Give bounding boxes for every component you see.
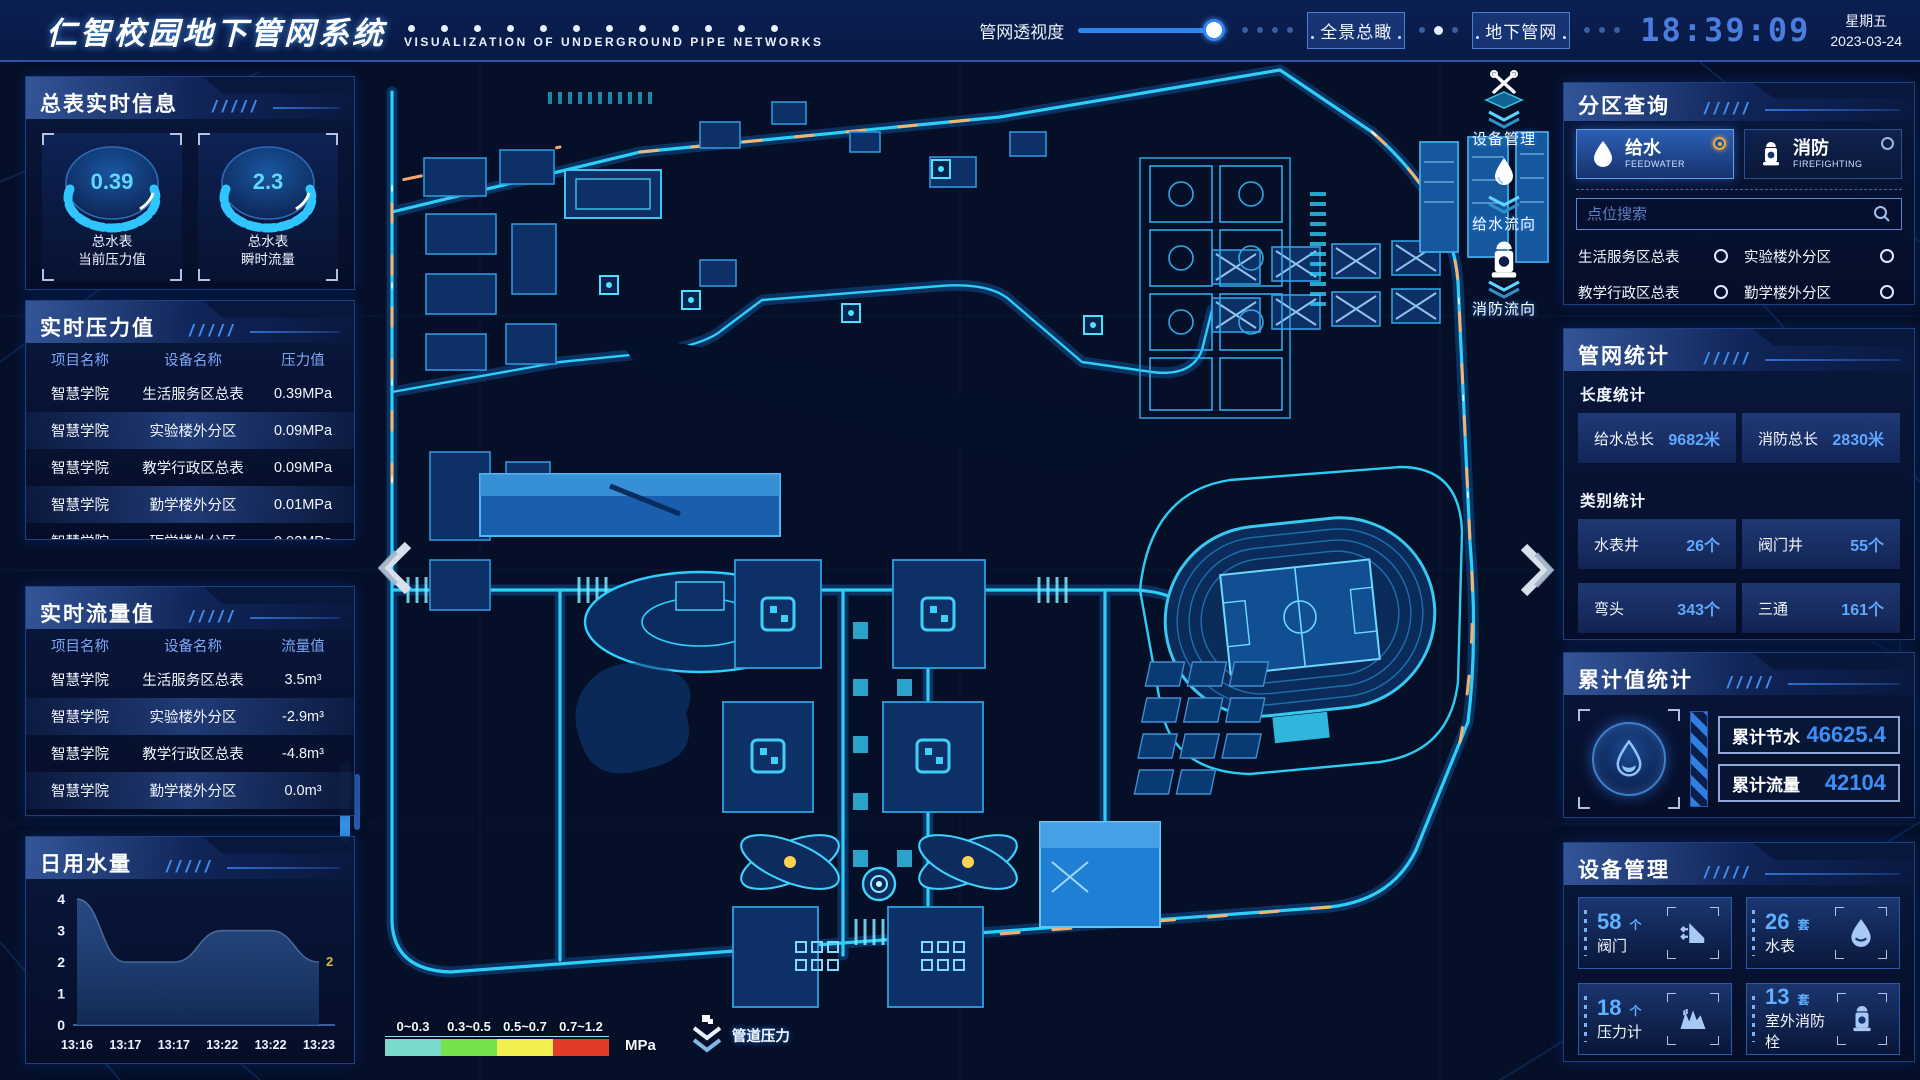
table-row: 智慧学院勤学楼外分区0.0m³ [26,772,354,809]
slashes-decoration: ///// [212,98,261,115]
toolbar-feedwater-flow[interactable]: 给水流向 [1472,155,1536,234]
stat-elbows: 弯头343个 [1578,583,1736,633]
section-title: 设备管理 [1578,860,1670,881]
table-cell: 0.02MPa [262,534,344,541]
stat-fire-length: 消防总长2830米 [1742,413,1900,463]
table-cell: 0.39MPa [262,386,344,402]
stat-valve-wells: 阀门井55个 [1742,519,1900,569]
panel-device-management: 设备管理///// 58个阀门 26套水表 [1563,842,1915,1062]
cumulative-saved-water: 累计节水46625.4 [1718,716,1900,754]
top-header: 仁智校园地下管网系统 VISUALIZATION OF UNDERGROUND … [0,0,1920,62]
table-row: 智慧学院教学行政区总表0.09MPa [26,449,354,486]
gauge-label: 总水表瞬时流量 [241,233,295,269]
hydrant-icon [1485,240,1523,280]
slashes-decoration: ///// [1704,100,1753,117]
legend-color-segment [497,1039,553,1056]
legend-range-label: 0.5~0.7 [497,1019,553,1034]
dots-decoration [1242,27,1293,33]
table-cell: 砺学楼外分区 [124,531,262,540]
zone-radio[interactable] [1714,285,1728,299]
table-cell: 0.0m³ [262,783,344,799]
device-card-valves[interactable]: 58个阀门 [1578,897,1732,969]
svg-text:13:22: 13:22 [255,1038,287,1052]
pipe-pressure-icon [690,1014,724,1056]
slashes-decoration: ///// [1704,864,1753,881]
svg-text:13:16: 13:16 [61,1038,93,1052]
chevron-down-icon [1486,110,1522,130]
table-row: 智慧学院砺学楼外分区0.02MPa [26,523,354,540]
zone-label: 实验楼外分区 [1744,246,1831,267]
firefighting-radio[interactable] [1881,137,1894,150]
device-card-hydrants[interactable]: 13套室外消防栓 [1746,983,1900,1055]
table-row: 智慧学院实验楼外分区0.09MPa [26,412,354,449]
svg-text:3: 3 [57,923,65,939]
title-dots-decoration [404,25,823,32]
hydrant-icon [1849,1004,1875,1034]
table-cell: 生活服务区总表 [124,669,262,690]
zone-label: 生活服务区总表 [1578,246,1680,267]
zone-label: 勤学楼外分区 [1744,282,1831,303]
gauge-card-pressure: 0.39 总水表当前压力值 [42,133,182,281]
table-cell: 生活服务区总表 [124,383,262,404]
slashes-decoration: ///// [1704,350,1753,367]
panel-pipe-stats: 管网统计///// 长度统计 给水总长9682米 消防总长2830米 类别统计 … [1563,328,1915,640]
table-cell: 教学行政区总表 [124,457,262,478]
water-drop-icon [1591,140,1615,168]
clock-time: 18:39:09 [1640,11,1810,49]
section-title: 实时压力值 [40,318,155,339]
legend-color-segment [385,1039,441,1056]
svg-text:13:17: 13:17 [109,1038,141,1052]
slashes-decoration: ///// [189,608,238,625]
table-cell: 智慧学院 [36,743,124,764]
panel-meter-info: 总表实时信息 ///// 0.39 总水表当前压力值 [25,76,355,290]
gauge-label: 总水表当前压力值 [78,233,146,269]
pan-right-arrow[interactable] [1514,542,1560,598]
panel-zone-query: 分区查询///// 给水FEEDWATER 消防FIREFIGHTING 生活服… [1563,82,1915,305]
gauge-card-flow: 2.3 总水表瞬时流量 [198,133,338,281]
dots-decoration [1419,26,1458,35]
table-cell: 教学行政区总表 [124,743,262,764]
dots-decoration [1584,27,1620,33]
slashes-decoration: ///// [1727,674,1776,691]
pressure-table: 智慧学院生活服务区总表0.39MPa智慧学院实验楼外分区0.09MPa智慧学院教… [26,375,354,540]
device-card-pressure-gauges[interactable]: 18个压力计 [1578,983,1732,1055]
app-title: 仁智校园地下管网系统 [46,8,386,53]
section-title: 累计值统计 [1578,670,1693,691]
panel-daily-water: 日用水量///// 0123413:1613:1713:1713:2213:22… [25,836,355,1064]
slashes-decoration: ///// [166,858,215,875]
category-stats-label: 类别统计 [1564,477,1914,519]
svg-text:1: 1 [57,986,65,1002]
panel-realtime-pressure: 实时压力值///// 项目名称 设备名称 压力值 智慧学院生活服务区总表0.39… [25,300,355,540]
table-cell: 3.5m³ [262,672,344,688]
section-title: 实时流量值 [40,604,155,625]
svg-text:2: 2 [326,954,333,969]
table-cell: 智慧学院 [36,780,124,801]
map-toolbar: 设备管理 给水流向 消防流向 [1452,66,1556,325]
hazard-stripes-decoration [1690,711,1708,807]
pressure-legend: 0~0.30.3~0.50.5~0.70.7~1.2 MPa 管道压力 [385,1014,790,1056]
svg-text:4: 4 [57,891,65,907]
table-cell: 智慧学院 [36,494,124,515]
svg-text:0.39: 0.39 [91,169,134,194]
svg-text:13:23: 13:23 [303,1038,335,1052]
hydrant-icon [1759,140,1783,168]
svg-text:13:17: 13:17 [158,1038,190,1052]
app-subtitle: VISUALIZATION OF UNDERGROUND PIPE NETWOR… [404,35,823,49]
gauge-dial: 2.3 [208,137,328,233]
table-header: 项目名称 设备名称 压力值 [26,343,354,375]
device-card-water-meters[interactable]: 26套水表 [1746,897,1900,969]
slashes-decoration: ///// [189,322,238,339]
table-row: 智慧学院实验楼外分区-2.9m³ [26,698,354,735]
toolbar-device-management[interactable]: 设备管理 [1472,66,1536,149]
legend-range-label: 0.7~1.2 [553,1019,609,1034]
table-row: 智慧学院勤学楼外分区0.01MPa [26,486,354,523]
chevron-down-icon [1486,195,1522,215]
legend-color-bar [385,1039,609,1056]
panel-cumulative: 累计值统计///// 累计节水46625.4 累计流量42104 [1563,652,1915,818]
table-cell: 0.01MPa [262,497,344,513]
table-cell: 实验楼外分区 [124,420,262,441]
table-cell: 智慧学院 [36,420,124,441]
table-cell: 0.09MPa [262,423,344,439]
table-cell: -4.8m³ [262,746,344,762]
wrench-icon [1482,66,1526,110]
zone-radio[interactable] [1880,285,1894,299]
table-cell: -2.9m³ [262,709,344,725]
dashed-divider [1576,189,1902,190]
table-row: 智慧学院生活服务区总表3.5m³ [26,661,354,698]
section-title: 总表实时信息 [40,94,178,115]
pan-left-arrow[interactable] [372,540,418,596]
search-icon[interactable] [1873,205,1891,223]
flow-table: 智慧学院生活服务区总表3.5m³智慧学院实验楼外分区-2.9m³智慧学院教学行政… [26,661,354,816]
transparency-slider-label: 管网透视度 [979,18,1064,43]
date-label: 2023-03-24 [1830,33,1902,49]
panel-realtime-flow: 实时流量值///// 项目名称 设备名称 流量值 智慧学院生活服务区总表3.5m… [25,586,355,816]
legend-color-segment [553,1039,609,1056]
legend-unit: MPa [625,1037,656,1054]
table-cell: 勤学楼外分区 [124,780,262,801]
gauge-dial: 0.39 [52,137,172,233]
water-emblem [1578,709,1680,809]
table-cell: 智慧学院 [36,706,124,727]
legend-range-label: 0.3~0.5 [441,1019,497,1034]
table-cell: 0.09MPa [262,460,344,476]
section-title: 分区查询 [1578,96,1670,117]
legend-range-label: 0~0.3 [385,1019,441,1034]
water-meter-icon [1848,918,1874,948]
zone-item[interactable]: 教学行政区总表 [1578,274,1734,305]
table-cell: 智慧学院 [36,457,124,478]
section-header: 总表实时信息 ///// [26,77,354,119]
legend-color-segment [441,1039,497,1056]
length-stats-label: 长度统计 [1564,371,1914,413]
zone-item[interactable]: 生活服务区总表 [1578,238,1734,274]
pressure-gauge-icon [1678,1004,1708,1034]
dashboard-stage: 仁智校园地下管网系统 VISUALIZATION OF UNDERGROUND … [0,0,1920,1080]
zone-list: 生活服务区总表实验楼外分区教学行政区总表勤学楼外分区砺学楼外分区宿舍区泵房 [1564,230,1914,305]
chevron-down-icon [1486,280,1522,300]
underground-network-button[interactable]: 地下管网 [1472,12,1570,49]
table-cell: 勤学楼外分区 [124,494,262,515]
svg-text:13:22: 13:22 [206,1038,238,1052]
svg-text:0: 0 [57,1017,65,1033]
stat-meter-wells: 水表井26个 [1578,519,1736,569]
slider-thumb[interactable] [1203,19,1225,41]
feedwater-toggle-button[interactable]: 给水FEEDWATER [1576,129,1734,179]
toolbar-fire-flow[interactable]: 消防流向 [1472,240,1536,319]
svg-text:2.3: 2.3 [253,169,284,194]
legend-labels: 0~0.30.3~0.50.5~0.70.7~1.2 [385,1019,609,1037]
transparency-slider[interactable] [1078,19,1228,41]
stat-tees: 三通161个 [1742,583,1900,633]
valve-icon [1678,918,1708,948]
cumulative-flow: 累计流量42104 [1718,764,1900,802]
zone-item[interactable]: 实验楼外分区 [1744,238,1900,274]
section-title: 日用水量 [40,854,132,875]
table-cell: 智慧学院 [36,531,124,540]
zone-item[interactable]: 勤学楼外分区 [1744,274,1900,305]
section-title: 管网统计 [1578,346,1670,367]
daily-water-chart: 0123413:1613:1713:1713:2213:2213:232 [32,885,352,1057]
water-drop-icon [1484,155,1524,195]
panorama-overview-button[interactable]: 全景总瞰 [1307,12,1405,49]
stat-feedwater-length: 给水总长9682米 [1578,413,1736,463]
table-cell: 智慧学院 [36,669,124,690]
zone-label: 教学行政区总表 [1578,282,1680,303]
svg-text:2: 2 [57,954,65,970]
firefighting-toggle-button[interactable]: 消防FIREFIGHTING [1744,129,1902,179]
table-row: 智慧学院砺学楼外分区2.3m³ [26,809,354,816]
feedwater-radio[interactable] [1713,137,1726,150]
weekday-label: 星期五 [1845,11,1887,31]
water-drop-icon [1614,740,1644,778]
table-row: 智慧学院生活服务区总表0.39MPa [26,375,354,412]
table-cell: 实验楼外分区 [124,706,262,727]
zone-radio[interactable] [1714,249,1728,263]
search-box[interactable] [1576,198,1902,230]
pipe-pressure-marker[interactable]: 管道压力 [690,1014,790,1056]
point-search-input[interactable] [1587,206,1873,223]
zone-radio[interactable] [1880,249,1894,263]
table-row: 智慧学院教学行政区总表-4.8m³ [26,735,354,772]
table-cell: 智慧学院 [36,383,124,404]
table-header: 项目名称 设备名称 流量值 [26,629,354,661]
